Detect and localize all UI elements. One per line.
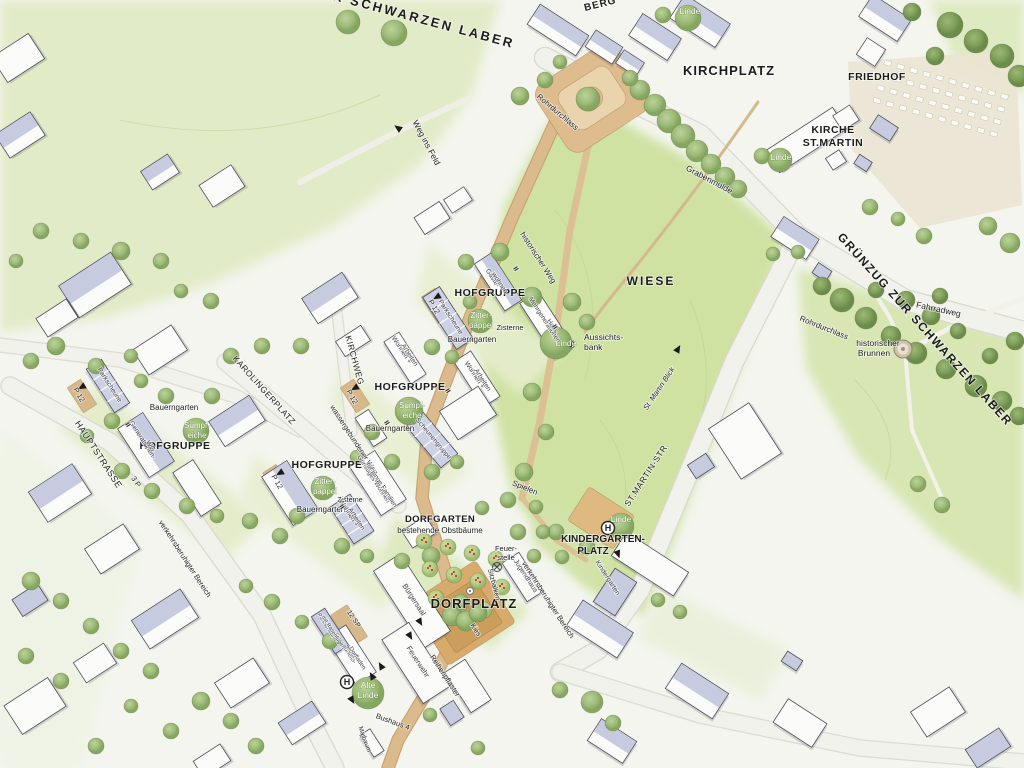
fruit-tree [440,539,456,555]
tree [964,29,988,53]
map-label: Brunnen [858,348,890,358]
tree [979,217,997,235]
map-label: Linde [611,514,632,524]
tree [381,20,407,46]
map-label: Zitter- [471,311,492,320]
fruit-dot [455,575,457,577]
fruit-dot [499,585,501,587]
tree [536,525,550,539]
site-plan-page: HH ZUR SCHWARZEN LABERBERGKIRCHPLATZFRIE… [0,0,1024,768]
fruit-dot [493,557,495,559]
tree [134,374,148,388]
map-label: Feuer- [495,544,518,553]
tree [555,550,569,564]
tree [144,483,160,499]
fruit-tree [446,567,462,583]
fruit-dot [449,547,451,549]
map-label: Bauerngarten [448,335,496,344]
tree [491,243,509,261]
tree [1006,332,1024,350]
fruit-dot [429,565,431,567]
map-label: pappel [313,487,337,496]
tree [471,741,485,755]
tree [112,242,130,260]
tree [576,87,600,111]
tree [937,12,963,38]
tree [515,463,533,481]
tree [424,339,440,355]
fruit-dot [503,587,505,589]
tree [622,70,638,86]
fruit-tree [422,561,438,577]
map-label: Linde [680,6,701,16]
tree [445,350,459,364]
tree [766,247,780,261]
tree [336,10,360,34]
tree [1000,233,1020,253]
tree [360,549,374,563]
fruit-tree [416,533,432,549]
tree [511,87,529,105]
tree [926,47,944,65]
map-label: DORFPLATZ [431,596,518,611]
map-label: Bauerngarten [150,403,198,412]
tree [210,509,224,523]
map-label: KINDERGARTEN- [561,534,645,545]
map-label: historischer [856,338,900,348]
tree [384,454,400,470]
fruit-dot [471,549,473,551]
tree [254,338,270,354]
fruit-dot [453,571,455,573]
tree [334,538,350,554]
tree [458,254,474,270]
fruit-dot [469,551,471,553]
tree [192,692,210,710]
tree [163,723,179,739]
tree [53,673,69,689]
tree [83,618,99,634]
fruit-tree [470,573,486,589]
fruit-dot [477,577,479,579]
tree [394,553,410,569]
map-label: DORFGARTEN [405,514,475,525]
map-label: FRIEDHOF [848,71,906,83]
tree [891,212,905,226]
tree [813,277,831,295]
map-label: HOFGRUPPE [374,381,445,393]
tree [673,605,687,619]
map-label: PLATZ [577,546,608,557]
tree [143,663,159,679]
map-label: WIESE [627,274,676,288]
tree [910,476,926,492]
tree [510,524,526,540]
tree [982,348,998,364]
map-label: ST.MARTIN [803,137,864,149]
tree [203,293,219,309]
map-label: pappel [469,321,493,330]
tree [605,715,621,731]
fruit-dot [479,581,481,583]
tree [23,353,39,369]
bus-stop-letter: H [344,677,351,687]
tree [33,223,49,239]
tree [53,593,69,609]
fruit-dot [501,583,503,585]
fruit-dot [475,579,477,581]
tree [450,455,464,469]
tree [88,738,104,754]
tree [500,492,516,508]
fruit-dot [421,539,423,541]
tree [18,648,34,664]
map-label: stelle [497,553,515,562]
tree [204,388,220,404]
tree [124,349,138,363]
tree [158,388,174,404]
fruit-dot [447,543,449,545]
tree [124,699,138,713]
fruit-dot [473,553,475,555]
tree [932,288,948,304]
tree [537,72,553,88]
tree [830,288,854,312]
tree [563,293,581,311]
map-label: KIRCHPLATZ [683,63,775,78]
tree [153,253,169,269]
tree [9,254,23,268]
tree [223,713,239,729]
tree [581,691,603,713]
fruit-dot [445,545,447,547]
tree [47,337,65,355]
map-label: Linde [358,690,379,700]
tree [579,314,595,330]
tree [264,594,280,610]
tree [424,464,440,480]
map-label: Zisterne [496,323,523,332]
tree [916,228,932,244]
maypole-icon-dot [469,590,471,592]
tree [179,498,195,514]
map-label: Sumpf- [399,401,425,410]
tree [754,148,770,164]
tree [272,528,288,544]
fruit-tree [464,545,480,561]
fruit-dot [427,567,429,569]
fruit-dot [425,541,427,543]
fruit-dot [431,569,433,571]
tree [423,708,437,722]
tree [239,579,253,593]
tree [104,413,120,429]
map-label: KIRCHE [811,124,854,136]
tree [523,383,541,401]
well-icon-center [901,347,905,351]
map-label: Alte [361,680,376,690]
site-plan-map: HH ZUR SCHWARZEN LABERBERGKIRCHPLATZFRIE… [0,0,1024,768]
map-label: HOFGRUPPE [291,459,362,471]
tree [538,424,554,440]
tree [295,615,309,629]
tree [248,738,264,754]
fruit-dot [423,537,425,539]
map-label: HOFGRUPPE [454,287,525,299]
tree [950,323,966,339]
map-label: Bauerngarten [366,424,414,433]
map-label: bestehende Obstbäume [397,526,483,535]
map-label: Aussichts- [584,332,623,342]
tree [22,572,40,590]
tree [293,338,309,354]
tree [990,44,1014,68]
tree [553,55,567,69]
tree [174,284,188,298]
tree [73,233,89,249]
map-label: bank [584,342,603,352]
tree [529,500,543,514]
fruit-dot [451,573,453,575]
map-label: eiche [187,431,207,440]
tree [655,7,671,23]
tree [113,643,129,659]
tree [855,307,877,329]
tree [934,497,950,513]
tree [552,682,568,698]
tree [791,245,805,259]
map-label: Linde [771,152,792,162]
bus-stop-letter: H [605,523,612,533]
tree [651,593,665,607]
tree [862,199,878,215]
tree [475,501,489,515]
map-label: Zitter- [315,477,336,486]
map-label: Sumpf- [184,421,210,430]
tree [242,513,258,529]
tree [903,3,921,21]
